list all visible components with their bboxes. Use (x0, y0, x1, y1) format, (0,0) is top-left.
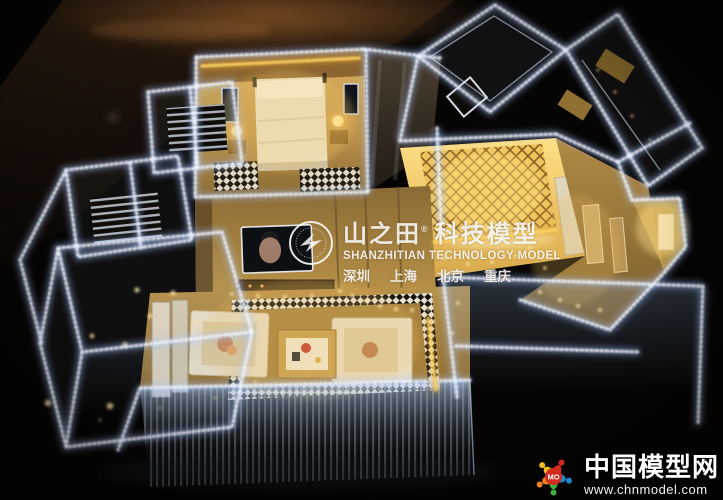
chnmodel-logo-icon: MO (531, 453, 576, 498)
registered-mark: ® (421, 224, 428, 234)
shanzhitian-logo-icon (288, 220, 334, 266)
brand-cities: 深圳 上海 北京 重庆 (343, 265, 511, 285)
watermark-chnmodel: MO 中国模型网 www.chnmodel.com (531, 453, 719, 498)
city-shenzhen: 深圳 (343, 265, 370, 285)
site-name: 中国模型网 (584, 454, 719, 481)
brand-cn: 山之田 (343, 221, 421, 248)
city-chongqing: 重庆 (484, 265, 511, 285)
photo-canvas: 山之田®科技模型 SHANZHITIAN TECHNOLOGY MODEL 深圳… (0, 0, 723, 500)
brand-en: SHANZHITIAN TECHNOLOGY MODEL (343, 250, 561, 262)
site-url: www.chnmodel.com (584, 482, 719, 497)
brand-suffix: 科技模型 (435, 221, 539, 248)
city-beijing: 北京 (437, 265, 464, 285)
watermark-shanzhitian: 山之田®科技模型 SHANZHITIAN TECHNOLOGY MODEL 深圳… (288, 216, 561, 285)
logo-mo-text: MO (547, 472, 559, 481)
city-shanghai: 上海 (390, 265, 417, 285)
brand-title: 山之田®科技模型 (343, 216, 561, 248)
